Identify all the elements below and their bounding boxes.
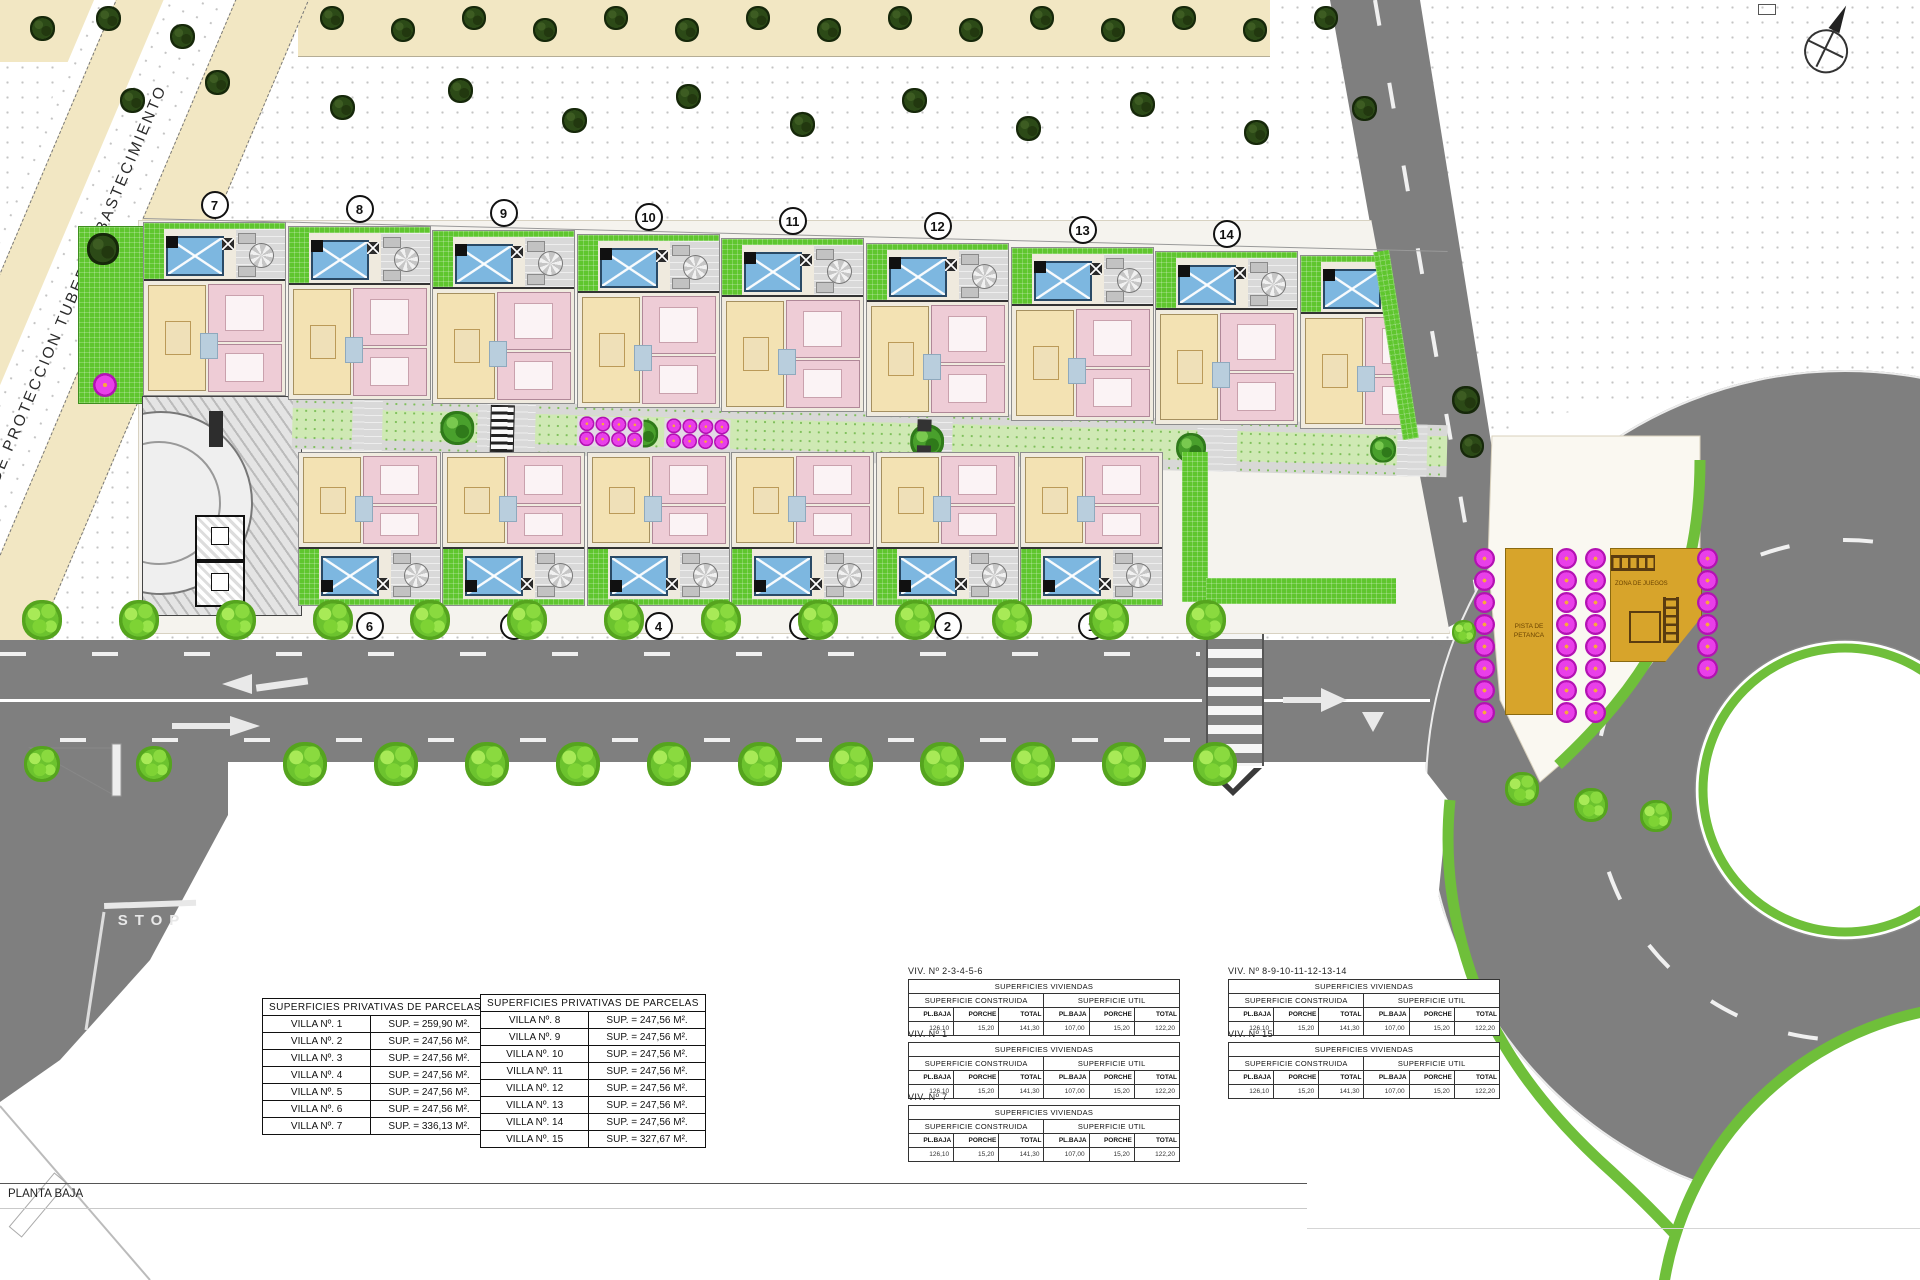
table-row: VILLA Nº. 6 SUP. = 247,56 M². (263, 1101, 488, 1118)
villa-cell: VILLA Nº. 10 (481, 1046, 589, 1063)
value-cell: 122,20 (1134, 1085, 1179, 1099)
dwelling-table: SUPERFICIES VIVIENDASSUPERFICIE CONSTRUI… (908, 979, 1180, 1036)
column-header: TOTAL (999, 1071, 1044, 1085)
tables-layer: SUPERFICIES PRIVATIVAS DE PARCELAS VILLA… (0, 0, 1920, 1280)
surface-cell: SUP. = 247,56 M². (589, 1080, 706, 1097)
column-header: TOTAL (1319, 1071, 1364, 1085)
surface-cell: SUP. = 247,56 M². (589, 1063, 706, 1080)
group-header: SUPERFICIE CONSTRUIDA (1229, 1057, 1364, 1071)
table-row: VILLA Nº. 8 SUP. = 247,56 M². (481, 1012, 706, 1029)
villa-cell: VILLA Nº. 4 (263, 1067, 371, 1084)
column-header: PL.BAJA (909, 1071, 954, 1085)
column-header: PL.BAJA (909, 1134, 954, 1148)
table-title: SUPERFICIES PRIVATIVAS DE PARCELAS (481, 995, 706, 1012)
dwelling-table: SUPERFICIES VIVIENDASSUPERFICIE CONSTRUI… (908, 1105, 1180, 1162)
column-header: PORCHE (1089, 1071, 1134, 1085)
dwelling-table-caption: VIV. Nº 2-3-4-5-6 (908, 966, 983, 976)
value-cell: 122,20 (1134, 1022, 1179, 1036)
value-cell: 15,20 (954, 1085, 999, 1099)
villa-cell: VILLA Nº. 5 (263, 1084, 371, 1101)
group-header: SUPERFICIE CONSTRUIDA (909, 1120, 1044, 1134)
column-header: PL.BAJA (1044, 1134, 1089, 1148)
column-header: PL.BAJA (1229, 1071, 1274, 1085)
table-row: VILLA Nº. 5 SUP. = 247,56 M². (263, 1084, 488, 1101)
column-header: PL.BAJA (909, 1008, 954, 1022)
column-header: PORCHE (1089, 1008, 1134, 1022)
group-header: SUPERFICIE CONSTRUIDA (909, 994, 1044, 1008)
floor-title: PLANTA BAJA (8, 1188, 83, 1200)
surface-cell: SUP. = 247,56 M². (371, 1084, 488, 1101)
value-cell: 122,20 (1134, 1148, 1179, 1162)
column-header: PORCHE (1274, 1071, 1319, 1085)
table-row: VILLA Nº. 10 SUP. = 247,56 M². (481, 1046, 706, 1063)
table-row: VILLA Nº. 13 SUP. = 247,56 M². (481, 1097, 706, 1114)
column-header: PORCHE (1089, 1134, 1134, 1148)
villa-cell: VILLA Nº. 9 (481, 1029, 589, 1046)
value-cell: 107,00 (1044, 1085, 1089, 1099)
dwelling-surface-table: SUPERFICIES VIVIENDASSUPERFICIE CONSTRUI… (908, 1042, 1180, 1099)
value-cell: 15,20 (1089, 1085, 1134, 1099)
column-header: PORCHE (1274, 1008, 1319, 1022)
table-row: VILLA Nº. 2 SUP. = 247,56 M². (263, 1033, 488, 1050)
column-header: PORCHE (954, 1071, 999, 1085)
surface-cell: SUP. = 336,13 M². (371, 1118, 488, 1135)
table-header: SUPERFICIES VIVIENDAS (909, 1106, 1180, 1120)
value-cell: 15,20 (1089, 1022, 1134, 1036)
villa-cell: VILLA Nº. 6 (263, 1101, 371, 1118)
villa-cell: VILLA Nº. 13 (481, 1097, 589, 1114)
parcel-table: SUPERFICIES PRIVATIVAS DE PARCELAS VILLA… (480, 994, 706, 1148)
value-cell: 141,30 (1319, 1022, 1364, 1036)
dwelling-surface-table: SUPERFICIES VIVIENDASSUPERFICIE CONSTRUI… (908, 1105, 1180, 1162)
villa-cell: VILLA Nº. 14 (481, 1114, 589, 1131)
column-header: PORCHE (1409, 1071, 1454, 1085)
villa-cell: VILLA Nº. 3 (263, 1050, 371, 1067)
column-header: TOTAL (1134, 1134, 1179, 1148)
surface-cell: SUP. = 247,56 M². (589, 1097, 706, 1114)
value-cell: 126,10 (909, 1148, 954, 1162)
surface-cell: SUP. = 247,56 M². (371, 1033, 488, 1050)
table-title: SUPERFICIES PRIVATIVAS DE PARCELAS (263, 999, 488, 1016)
villa-cell: VILLA Nº. 1 (263, 1016, 371, 1033)
value-cell: 122,20 (1454, 1022, 1499, 1036)
villa-cell: VILLA Nº. 15 (481, 1131, 589, 1148)
surface-cell: SUP. = 327,67 M². (589, 1131, 706, 1148)
column-header: TOTAL (999, 1134, 1044, 1148)
group-header: SUPERFICIE UTIL (1044, 994, 1180, 1008)
value-cell: 15,20 (954, 1148, 999, 1162)
dwelling-table-caption: VIV. Nº 15 (1228, 1029, 1273, 1039)
column-header: TOTAL (1454, 1008, 1499, 1022)
group-header: SUPERFICIE UTIL (1364, 994, 1500, 1008)
dwelling-table: SUPERFICIES VIVIENDASSUPERFICIE CONSTRUI… (1228, 1042, 1500, 1099)
value-cell: 126,10 (1229, 1085, 1274, 1099)
villa-cell: VILLA Nº. 11 (481, 1063, 589, 1080)
table-row: VILLA Nº. 1 SUP. = 259,90 M². (263, 1016, 488, 1033)
value-cell: 107,00 (1364, 1022, 1409, 1036)
column-header: PL.BAJA (1364, 1008, 1409, 1022)
column-header: TOTAL (1134, 1008, 1179, 1022)
table-header: SUPERFICIES VIVIENDAS (909, 980, 1180, 994)
surface-cell: SUP. = 247,56 M². (589, 1029, 706, 1046)
dwelling-surface-table: SUPERFICIES VIVIENDASSUPERFICIE CONSTRUI… (908, 979, 1180, 1036)
value-cell: 122,20 (1454, 1085, 1499, 1099)
villa-cell: VILLA Nº. 2 (263, 1033, 371, 1050)
value-cell: 141,30 (999, 1022, 1044, 1036)
group-header: SUPERFICIE UTIL (1044, 1057, 1180, 1071)
column-header: TOTAL (999, 1008, 1044, 1022)
dwelling-table-caption: VIV. Nº 7 (908, 1092, 948, 1102)
column-header: PORCHE (1409, 1008, 1454, 1022)
dwelling-table-caption: VIV. Nº 8-9-10-11-12-13-14 (1228, 966, 1347, 976)
column-header: PL.BAJA (1044, 1008, 1089, 1022)
title-rule-top (0, 1183, 1307, 1184)
group-header: SUPERFICIE UTIL (1044, 1120, 1180, 1134)
title-rule-bottom (0, 1208, 1307, 1209)
column-header: PL.BAJA (1364, 1071, 1409, 1085)
parcel-surface-table: SUPERFICIES PRIVATIVAS DE PARCELAS VILLA… (262, 998, 488, 1135)
group-header: SUPERFICIE CONSTRUIDA (1229, 994, 1364, 1008)
dwelling-table: SUPERFICIES VIVIENDASSUPERFICIE CONSTRUI… (908, 1042, 1180, 1099)
column-header: PORCHE (954, 1008, 999, 1022)
survey-mark (1758, 4, 1776, 15)
value-cell: 107,00 (1044, 1022, 1089, 1036)
dwelling-surface-table: SUPERFICIES VIVIENDASSUPERFICIE CONSTRUI… (1228, 979, 1500, 1036)
dwelling-surface-table: SUPERFICIES VIVIENDASSUPERFICIE CONSTRUI… (1228, 1042, 1500, 1099)
column-header: PL.BAJA (1229, 1008, 1274, 1022)
villa-cell: VILLA Nº. 12 (481, 1080, 589, 1097)
dwelling-table-caption: VIV. Nº 1 (908, 1029, 948, 1039)
value-cell: 15,20 (1089, 1148, 1134, 1162)
table-header: SUPERFICIES VIVIENDAS (1229, 1043, 1500, 1057)
frame-rule-right (1307, 1228, 1920, 1229)
table-row: VILLA Nº. 7 SUP. = 336,13 M². (263, 1118, 488, 1135)
table-row: VILLA Nº. 15 SUP. = 327,67 M². (481, 1131, 706, 1148)
group-header: SUPERFICIE CONSTRUIDA (909, 1057, 1044, 1071)
table-row: VILLA Nº. 4 SUP. = 247,56 M². (263, 1067, 488, 1084)
surface-cell: SUP. = 247,56 M². (589, 1046, 706, 1063)
column-header: TOTAL (1134, 1071, 1179, 1085)
column-header: PORCHE (954, 1134, 999, 1148)
table-row: VILLA Nº. 9 SUP. = 247,56 M². (481, 1029, 706, 1046)
surface-cell: SUP. = 247,56 M². (371, 1067, 488, 1084)
value-cell: 15,20 (954, 1022, 999, 1036)
table-header: SUPERFICIES VIVIENDAS (1229, 980, 1500, 994)
surface-cell: SUP. = 247,56 M². (589, 1012, 706, 1029)
group-header: SUPERFICIE UTIL (1364, 1057, 1500, 1071)
value-cell: 15,20 (1409, 1022, 1454, 1036)
surface-cell: SUP. = 247,56 M². (589, 1114, 706, 1131)
table-row: VILLA Nº. 12 SUP. = 247,56 M². (481, 1080, 706, 1097)
table-header: SUPERFICIES VIVIENDAS (909, 1043, 1180, 1057)
table-row: VILLA Nº. 11 SUP. = 247,56 M². (481, 1063, 706, 1080)
value-cell: 107,00 (1364, 1085, 1409, 1099)
villa-cell: VILLA Nº. 8 (481, 1012, 589, 1029)
parcel-table: SUPERFICIES PRIVATIVAS DE PARCELAS VILLA… (262, 998, 488, 1135)
surface-cell: SUP. = 247,56 M². (371, 1101, 488, 1118)
value-cell: 141,30 (1319, 1085, 1364, 1099)
table-row: VILLA Nº. 3 SUP. = 247,56 M². (263, 1050, 488, 1067)
table-row: VILLA Nº. 14 SUP. = 247,56 M². (481, 1114, 706, 1131)
surface-cell: SUP. = 259,90 M². (371, 1016, 488, 1033)
value-cell: 107,00 (1044, 1148, 1089, 1162)
value-cell: 15,20 (1409, 1085, 1454, 1099)
parcel-surface-table: SUPERFICIES PRIVATIVAS DE PARCELAS VILLA… (480, 994, 706, 1148)
value-cell: 15,20 (1274, 1085, 1319, 1099)
value-cell: 141,30 (999, 1148, 1044, 1162)
value-cell: 141,30 (999, 1085, 1044, 1099)
column-header: PL.BAJA (1044, 1071, 1089, 1085)
surface-cell: SUP. = 247,56 M². (371, 1050, 488, 1067)
value-cell: 15,20 (1274, 1022, 1319, 1036)
dwelling-table: SUPERFICIES VIVIENDASSUPERFICIE CONSTRUI… (1228, 979, 1500, 1036)
column-header: TOTAL (1454, 1071, 1499, 1085)
site-plan-drawing: BANDA DE PROTECCION TUBERIA ABASTECIMIEN… (0, 0, 1920, 1280)
column-header: TOTAL (1319, 1008, 1364, 1022)
villa-cell: VILLA Nº. 7 (263, 1118, 371, 1135)
